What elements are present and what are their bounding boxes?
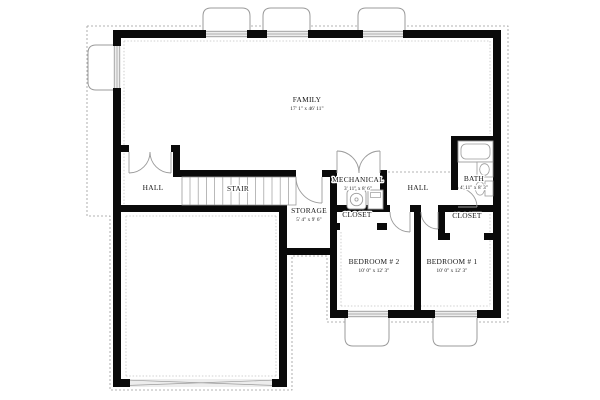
room-label-hall-left: HALL xyxy=(143,183,164,192)
room-label-hall-right: HALL xyxy=(408,183,429,192)
room-label-closet-mechanical: CLOSET xyxy=(342,210,372,219)
wall-segment xyxy=(287,248,337,255)
room-dim-bedroom-1: 10' 0" x 12' 3" xyxy=(437,268,468,274)
room-dim-bath: 4' 11" x 8' 3" xyxy=(460,185,488,191)
wall-segment xyxy=(484,233,501,240)
window-well xyxy=(88,45,114,90)
wall-segment xyxy=(330,170,337,318)
wall-segment xyxy=(113,205,287,212)
room-label-mechanical: MECHANICAL xyxy=(332,175,384,184)
window-well xyxy=(203,8,250,33)
wall-segment xyxy=(438,233,450,240)
room-label-bedroom-2: BEDROOM # 2 xyxy=(349,257,400,266)
floor-plan-screenshot: FAMILY17' 1" x 46' 11"HALLSTAIRSTORAGE5'… xyxy=(0,0,600,400)
room-label-bath: BATH xyxy=(464,174,485,183)
door-mech-double-left-arc xyxy=(337,151,359,173)
room-label-closet-right: CLOSET xyxy=(452,211,482,220)
wall-segment xyxy=(377,223,387,230)
room-dim-mechanical: 3' 11" x 8' 6" xyxy=(344,186,372,192)
floor-plan-svg: FAMILY17' 1" x 46' 11"HALLSTAIRSTORAGE5'… xyxy=(0,0,600,400)
room-label-bedroom-1: BEDROOM # 1 xyxy=(427,257,478,266)
wall-segment xyxy=(279,205,287,387)
door-mech-double-right-arc xyxy=(359,151,380,173)
room-label-family: FAMILY xyxy=(293,95,322,104)
room-dim-family: 17' 1" x 46' 11" xyxy=(290,106,323,112)
door-bedroom-1-arc xyxy=(421,212,438,229)
wall-segment xyxy=(121,145,129,152)
wall-segment xyxy=(173,145,180,177)
wall-segment xyxy=(414,205,421,318)
door-bedroom-2-arc xyxy=(390,212,410,232)
room-label-stair: STAIR xyxy=(227,184,249,193)
wall-segment xyxy=(180,170,296,177)
wall-segment xyxy=(451,136,458,190)
room-dim-bedroom-2: 10' 0" x 12' 3" xyxy=(359,268,390,274)
window-well xyxy=(433,317,477,346)
door-hall-double-right-arc xyxy=(150,152,171,173)
door-storage-landing-arc xyxy=(296,177,322,203)
door-hall-double-left-arc xyxy=(129,152,150,173)
wall-segment xyxy=(330,223,340,230)
room-label-storage: STORAGE xyxy=(291,206,327,215)
window-well xyxy=(263,8,310,33)
room-dim-storage: 5' 4" x 9' 6" xyxy=(296,217,322,223)
window-well xyxy=(358,8,405,33)
window-well xyxy=(345,317,389,346)
wall-segment xyxy=(493,30,501,318)
